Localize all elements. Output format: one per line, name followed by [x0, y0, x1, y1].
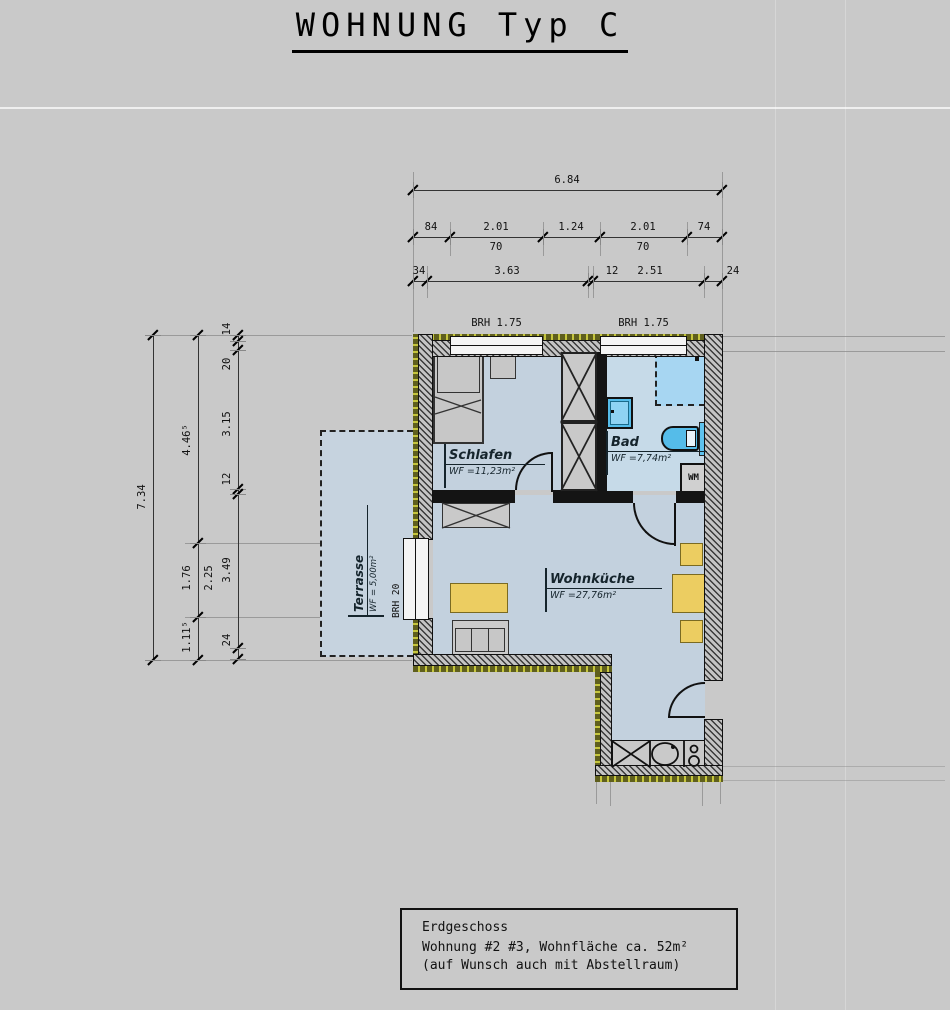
dimension-line — [198, 335, 199, 660]
dimension-tick-cross — [230, 494, 246, 495]
dimension-tick-cross — [230, 341, 246, 342]
dimension-value: 34 — [413, 265, 426, 277]
dimension-value: 7.34 — [136, 484, 148, 509]
dimension-tick-cross — [687, 229, 688, 245]
dimension-tick-cross — [427, 273, 428, 289]
door-leaf-entrance — [668, 716, 705, 718]
dimension-value: 2.01 — [483, 221, 508, 233]
room-name: Bad — [606, 435, 707, 452]
room-label-wohnkueche: Wohnküche WF =27,76m² — [545, 572, 662, 601]
wall-interior — [676, 491, 705, 503]
room-area: WF =7,74m² — [606, 452, 707, 464]
sofa-cushion-divider — [488, 629, 489, 651]
dimension-value: 74 — [698, 221, 711, 233]
dimension-value: 1.11⁵ — [181, 621, 193, 653]
room-label-bad: Bad WF =7,74m² — [606, 435, 707, 464]
sink-basin-inner — [610, 401, 629, 425]
grid-line — [775, 0, 776, 1010]
info-line-3: (auf Wunsch auch mit Abstellraum) — [402, 955, 736, 973]
bed-pillow — [437, 356, 480, 393]
window-glass-line — [601, 345, 686, 346]
grid-line — [0, 107, 950, 109]
dimension-value: 12 — [606, 265, 619, 277]
terrace-door-glass-line — [415, 539, 416, 619]
door-leaf-bad — [674, 503, 676, 546]
dimension-value: 3.15 — [221, 411, 233, 436]
dimension-line — [413, 237, 722, 238]
room-area: WF = 5,00m² — [368, 505, 379, 617]
floorplan-drawing: WOHNUNG Typ C 6.84842.011.242.0174707034… — [0, 0, 950, 1010]
label-tick — [444, 444, 446, 488]
kitchen-counter — [612, 740, 707, 768]
dimension-tick-cross — [230, 350, 246, 351]
dining-table — [672, 574, 706, 613]
witness-line — [723, 351, 945, 352]
witness-line — [723, 780, 945, 781]
dining-chair — [680, 543, 703, 566]
dimension-value: 3.63 — [494, 265, 519, 277]
terrace-door — [403, 538, 429, 620]
witness-line — [723, 336, 945, 337]
dimension-value: 4.46⁵ — [181, 424, 193, 456]
grid-line — [845, 0, 846, 1010]
info-line-1: Erdgeschoss — [402, 910, 736, 935]
washing-machine: WM — [680, 463, 707, 494]
sofa-seat — [455, 628, 505, 652]
dimension-value: 14 — [221, 323, 233, 336]
wall-interior — [433, 490, 515, 503]
wall-right-upper — [704, 334, 723, 681]
dimension-value: 1.24 — [558, 221, 583, 233]
witness-line — [720, 782, 721, 804]
label-tick — [606, 431, 608, 475]
info-box: Erdgeschoss Wohnung #2 #3, Wohnfläche ca… — [400, 908, 738, 990]
coffee-table — [450, 583, 508, 613]
room-label-schlafen: Schlafen WF =11,23m² — [444, 448, 545, 477]
dimension-tick-cross — [450, 229, 451, 245]
window-glass-line — [451, 345, 542, 346]
dimension-tick-cross — [593, 273, 594, 289]
dimension-line — [238, 335, 239, 659]
dimension-tick-cross — [145, 660, 161, 661]
dimension-value: 12 — [221, 473, 233, 486]
room-name: Schlafen — [444, 448, 545, 465]
room-name: Wohnküche — [545, 572, 662, 589]
wardrobe-shaft — [561, 352, 597, 422]
dimension-tick-cross — [230, 659, 246, 660]
wall-extension-bottom-insulation — [595, 775, 723, 782]
dimension-tick-cross — [704, 273, 705, 289]
room-name: Terrasse — [352, 505, 368, 617]
witness-line — [610, 782, 611, 806]
terrasse-rotated-label: Terrasse WF = 5,00m² — [352, 505, 388, 617]
dimension-line — [413, 281, 722, 282]
dimension-tick-cross — [190, 543, 206, 544]
room-area: WF =27,76m² — [545, 589, 662, 601]
witness-line — [723, 766, 945, 767]
dimension-line — [153, 335, 154, 660]
dimension-value: 6.84 — [554, 174, 579, 186]
shower-drain-dot — [695, 357, 699, 361]
dimension-value: 1.76 — [181, 565, 193, 590]
dimension-tick-cross — [190, 660, 206, 661]
label-tick — [348, 615, 384, 617]
sofa-cushion-divider — [471, 629, 472, 651]
room-area: WF =11,23m² — [444, 465, 545, 477]
door-leaf-schlafen — [551, 452, 553, 492]
dimension-value: 2.01 — [630, 221, 655, 233]
dimension-tick-cross — [413, 229, 414, 245]
wall-interior — [597, 352, 607, 503]
wardrobe-shaft — [561, 422, 597, 491]
dimension-tick-cross — [190, 617, 206, 618]
witness-line — [596, 782, 597, 804]
dimension-tick-cross — [413, 182, 414, 198]
window-brh-label: BRH 1.75 — [600, 317, 687, 329]
wall-interior — [607, 491, 633, 503]
label-tick — [545, 568, 547, 612]
dimension-value: 2.25 — [203, 565, 215, 590]
dimension-tick-cross — [230, 648, 246, 649]
info-line-2: Wohnung #2 #3, Wohnfläche ca. 52m² — [402, 935, 736, 955]
title-underline — [292, 50, 628, 53]
terrace-door-brh-label: BRH 20 — [391, 552, 405, 618]
dimension-tick-cross — [722, 229, 723, 245]
dimension-tick-cross — [722, 273, 723, 289]
wall-left-insulation — [413, 334, 419, 540]
dimension-tick-cross — [145, 335, 161, 336]
dimension-tick-cross — [722, 182, 723, 198]
dimension-tick-cross — [190, 335, 206, 336]
room-label-terrasse: Terrasse WF = 5,00m² — [352, 505, 388, 617]
dimension-value: 3.49 — [221, 557, 233, 582]
dimension-value: 24 — [727, 265, 740, 277]
dimension-value: 20 — [221, 358, 233, 371]
sideboard — [442, 503, 510, 528]
dimension-value: 70 — [637, 241, 650, 253]
dimension-value: 70 — [490, 241, 503, 253]
dimension-line — [413, 190, 722, 191]
page-title: WOHNUNG Typ C — [250, 6, 670, 44]
sink-faucet-dot — [611, 410, 614, 413]
dimension-value: 24 — [221, 634, 233, 647]
dimension-tick-cross — [600, 229, 601, 245]
dimension-value: 2.51 — [637, 265, 662, 277]
wall-bottom-insulation — [413, 665, 612, 672]
washing-machine-label: WM — [688, 473, 699, 483]
dining-chair — [680, 620, 703, 643]
dimension-value: 84 — [425, 221, 438, 233]
dimension-tick-cross — [543, 229, 544, 245]
window-brh-label: BRH 1.75 — [450, 317, 543, 329]
witness-line — [702, 782, 703, 806]
brh20-rotated: BRH 20 — [391, 552, 402, 618]
